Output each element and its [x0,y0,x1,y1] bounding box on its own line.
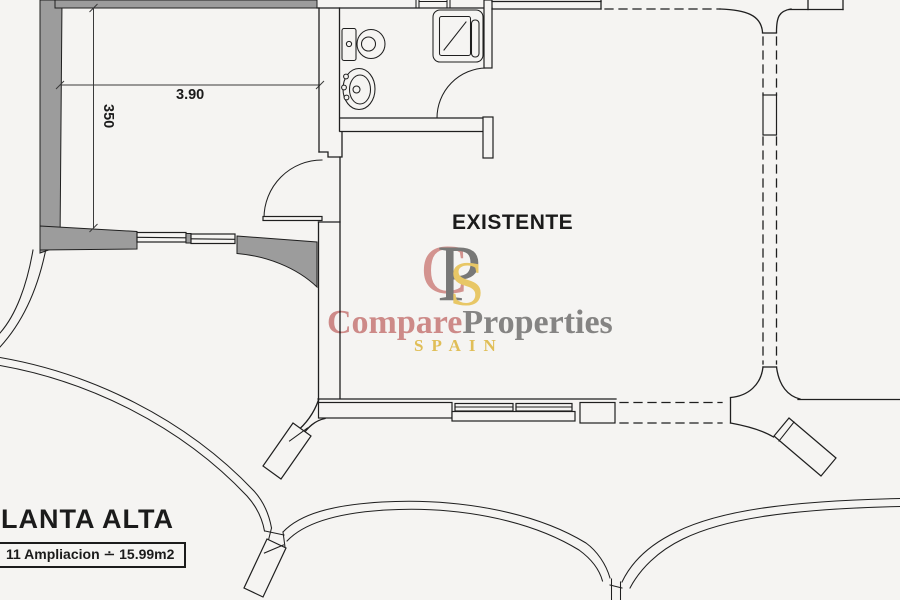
plan-title: PLANTA ALTA [0,504,174,535]
bottom-wall-curved-segment [237,236,317,287]
bottom-right-junction [731,367,900,476]
left-room-walls [40,0,317,287]
diagonal-buttress [774,418,836,476]
bathroom-door-arc [437,68,486,118]
wall-pillar [483,117,493,158]
right-dashed-wall [763,37,777,367]
bottom-left-junction [263,400,325,479]
area-note-box: 11 Ampliacion ∸ 15.99m2 [0,542,186,568]
dimension-lines [56,4,324,232]
door-leaf [263,217,322,221]
diagonal-buttress [244,539,286,597]
toilet-fixture [342,29,385,61]
window-sill [452,412,575,422]
wall-block [580,403,615,424]
bathroom [317,0,493,158]
dimension-width-label: 3.90 [176,87,204,103]
bottom-wall-segment [40,226,137,250]
window-mullion [186,234,191,244]
floor-plan-canvas: C P S CompareProperties SPAIN EXISTENTE … [0,0,900,600]
interior-door [263,8,342,222]
wall-pillar [763,95,777,135]
dimension-depth-label: 350 [100,104,116,128]
main-room-bottom-wall [318,399,722,423]
room-label-existente: EXISTENTE [452,211,573,235]
diagonal-buttress [263,423,311,479]
door-swing-arc [264,160,322,218]
left-wall [40,0,62,253]
main-room-top-wall [492,0,843,33]
bidet-fixture [342,69,375,110]
bathroom-right-wall [484,0,492,68]
shower-fixture [433,10,483,62]
